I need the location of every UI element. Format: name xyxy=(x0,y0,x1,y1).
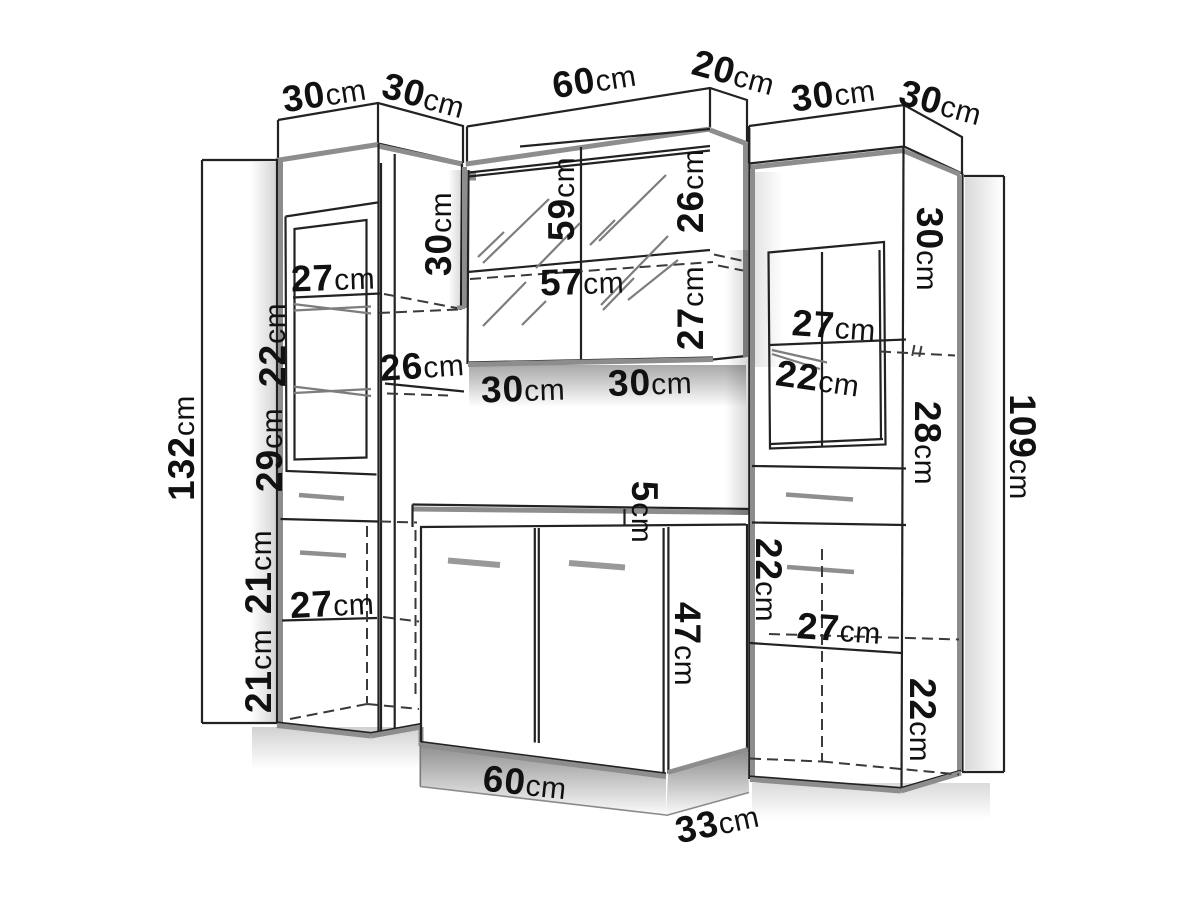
svg-text:21cm: 21cm xyxy=(238,530,279,614)
svg-text:22cm: 22cm xyxy=(902,678,943,762)
svg-text:109cm: 109cm xyxy=(1002,394,1043,500)
svg-text:30cm: 30cm xyxy=(607,360,693,404)
svg-text:30cm: 30cm xyxy=(480,367,566,411)
svg-text:57cm: 57cm xyxy=(539,260,625,304)
svg-text:27cm: 27cm xyxy=(290,256,376,300)
svg-text:22cm: 22cm xyxy=(748,538,789,622)
svg-text:47cm: 47cm xyxy=(667,602,708,686)
svg-text:22cm: 22cm xyxy=(252,303,293,387)
svg-text:27cm: 27cm xyxy=(670,266,711,350)
svg-text:59cm: 59cm xyxy=(541,157,582,241)
svg-text:30cm: 30cm xyxy=(909,207,950,291)
svg-text:28cm: 28cm xyxy=(907,401,948,485)
svg-text:5cm: 5cm xyxy=(624,481,665,544)
svg-text:132cm: 132cm xyxy=(161,395,202,501)
svg-text:29cm: 29cm xyxy=(249,408,290,492)
svg-text:21cm: 21cm xyxy=(238,629,279,713)
svg-text:26cm: 26cm xyxy=(670,149,711,233)
svg-text:27cm: 27cm xyxy=(289,581,375,626)
